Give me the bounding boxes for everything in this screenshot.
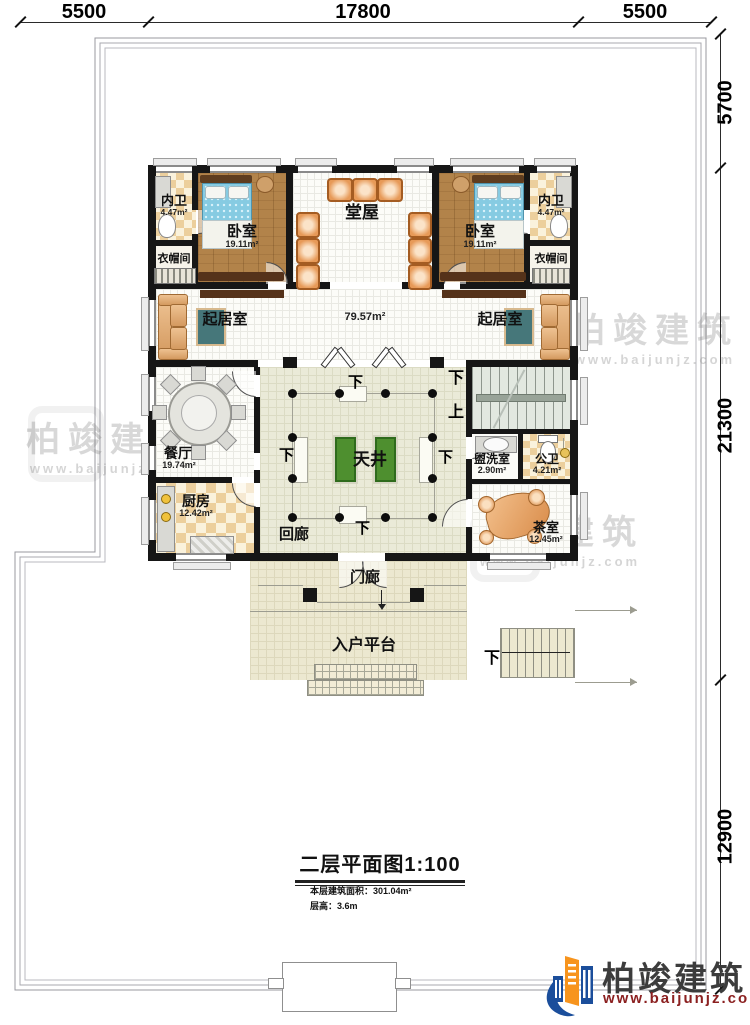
wall-bottom [385, 553, 578, 561]
label-dining: 餐厅 [152, 446, 204, 461]
dim-right-bottom: 12900 [715, 797, 738, 877]
courtyard-stub [430, 357, 444, 368]
dresser [198, 272, 284, 281]
dim-top-right: 5500 [595, 1, 695, 24]
window [570, 300, 578, 346]
window [156, 165, 192, 173]
bed-headboard [200, 175, 252, 183]
wardrobe [154, 268, 196, 284]
tv-cabinet [200, 290, 284, 298]
label-kitchen: 厨房 [170, 494, 222, 509]
stair-down-label: 下 [448, 364, 464, 388]
wall-court-stair [466, 367, 472, 437]
window [148, 500, 156, 540]
column [381, 513, 390, 522]
area-washroom: 2.90m² [466, 466, 518, 475]
entry-steps [307, 680, 424, 696]
plan-title: 二层平面图1:100 [295, 848, 465, 877]
chair [408, 264, 432, 290]
window-sill [173, 562, 231, 570]
label-washroom: 盥洗室 [466, 453, 518, 466]
title-block: 二层平面图1:100 [295, 848, 465, 886]
column [335, 389, 344, 398]
floor-area-note: 本层建筑面积：301.04m² [310, 884, 490, 897]
dim-right-top: 5700 [715, 63, 738, 143]
porch-edge-line [424, 585, 466, 586]
toilet-icon [550, 214, 568, 238]
wall-court-stair [466, 527, 472, 555]
window-sill [487, 562, 551, 570]
label-cloakroom-left: 衣帽间 [150, 254, 198, 266]
window [176, 553, 226, 561]
area-tea-room: 12.45m² [516, 535, 576, 544]
window [298, 165, 332, 173]
column [428, 513, 437, 522]
nightstand [452, 176, 470, 193]
label-bedroom-right: 卧室 [448, 224, 512, 240]
porch-step-arrow-head [378, 604, 386, 610]
window [537, 165, 571, 173]
area-bath-left: 4.47m² [152, 208, 196, 217]
dim-top-left: 5500 [44, 1, 124, 24]
courtyard-down-label: 下 [348, 371, 363, 392]
label-courtyard: 天井 [348, 451, 392, 469]
area-bath-right: 4.47m² [528, 208, 574, 217]
wash-sink [483, 437, 509, 452]
dim-right-middle: 21300 [715, 386, 738, 466]
bed-pillow [228, 186, 249, 199]
chair [296, 212, 320, 238]
leader-line [575, 682, 637, 683]
wardrobe [532, 268, 570, 284]
window [570, 380, 578, 420]
window-sill [580, 297, 588, 351]
leader-arrow-head [630, 606, 637, 614]
wall-bedL-hall [286, 172, 293, 282]
brand-url: www.baijunjz.com [603, 990, 750, 1007]
sofa-cushion [541, 327, 558, 350]
label-bath-right: 内卫 [528, 194, 574, 208]
area-dining: 19.74m² [150, 461, 208, 470]
watermark-logo-icon [28, 406, 104, 482]
sofa-cushion [541, 304, 558, 327]
tea-stool [479, 530, 494, 545]
wall-dining-court [254, 470, 260, 483]
porch-step-arrow [381, 590, 382, 605]
wall-bath-row-bottom [466, 479, 578, 484]
label-porch: 门廊 [330, 570, 400, 586]
wall-dining-court [254, 397, 260, 453]
wall-bedR-hall [432, 172, 439, 282]
chair [152, 405, 167, 420]
porch-edge-line [258, 585, 303, 586]
window [490, 553, 546, 561]
label-hall: 堂屋 [328, 204, 396, 222]
window [148, 300, 156, 346]
floor-height-note: 层高：3.6m [310, 899, 490, 912]
sofa-cushion [170, 327, 187, 350]
bed-pillow [500, 186, 521, 199]
window [397, 165, 429, 173]
bath-lamp-cord [563, 438, 564, 448]
leader-arrow-head [630, 678, 637, 686]
label-tea-room: 茶室 [518, 521, 574, 535]
column [288, 513, 297, 522]
dim-top-center: 17800 [313, 1, 413, 24]
column [428, 474, 437, 483]
window [453, 165, 519, 173]
site-gate-post-right [395, 978, 411, 989]
kitchen-sink [190, 536, 234, 554]
column [428, 389, 437, 398]
chair [352, 178, 378, 202]
chair [408, 212, 432, 238]
chair [231, 405, 246, 420]
wall-bath-left-bottom [148, 240, 196, 246]
porch-column [303, 588, 317, 602]
area-middle: 79.57m² [330, 312, 400, 323]
chair [191, 366, 206, 381]
column [288, 474, 297, 483]
toilet-icon [158, 214, 176, 238]
label-bedroom-left: 卧室 [210, 224, 274, 240]
courtyard-down-label: 下 [279, 444, 294, 465]
label-cloakroom-right: 衣帽间 [526, 254, 576, 266]
dresser [440, 272, 526, 281]
wall-dining-kitchen [148, 477, 232, 483]
label-living-left: 起居室 [190, 312, 260, 328]
tv-cabinet [442, 290, 526, 298]
courtyard-stub [283, 357, 297, 368]
area-kitchen: 12.42m² [166, 509, 226, 518]
window-sill [580, 377, 588, 425]
label-corridor: 回廊 [268, 527, 320, 543]
site-gate [282, 962, 397, 1012]
window-sill [580, 492, 588, 540]
exterior-stair-down-label: 下 [484, 644, 500, 668]
site-gate-post-left [268, 978, 284, 989]
wall-kitchen-court [254, 507, 260, 555]
chair [296, 264, 320, 290]
floor-plan-canvas: 柏竣建筑 www.baijunjz.com 柏竣建筑 www.baijunjz.… [0, 0, 750, 1025]
chair [296, 238, 320, 264]
column [288, 389, 297, 398]
label-entry-platform: 入户平台 [308, 638, 420, 655]
stair-handrail [476, 394, 566, 402]
column [381, 389, 390, 398]
nightstand [256, 176, 274, 193]
entry-steps [314, 664, 417, 680]
chair [408, 238, 432, 264]
platform-edge-line [250, 611, 467, 612]
title-notes: 本层建筑面积：301.04m² 层高：3.6m [310, 884, 490, 912]
sofa-cushion [170, 304, 187, 327]
chair [327, 178, 353, 202]
wall-living-bottom-right [466, 360, 578, 367]
window [210, 165, 276, 173]
tea-stool [478, 496, 495, 513]
bed-headboard [472, 175, 524, 183]
stair-up-label: 上 [448, 398, 464, 422]
column [288, 433, 297, 442]
column [428, 433, 437, 442]
porch-column [410, 588, 424, 602]
area-public-bath: 4.21m² [522, 466, 572, 475]
column [335, 513, 344, 522]
chair [377, 178, 403, 202]
dining-table-inner [181, 395, 217, 431]
brand-logo-icon [541, 950, 599, 1018]
label-public-bath: 公卫 [522, 453, 572, 466]
area-bedroom-right: 19.11m² [448, 240, 512, 249]
porch-step-line [317, 602, 410, 603]
exterior-stair-arrow [502, 652, 570, 653]
label-bath-left: 内卫 [152, 194, 196, 208]
courtyard-down-label: 下 [438, 446, 453, 467]
area-bedroom-left: 19.11m² [210, 240, 274, 249]
bed-pillow [205, 186, 226, 199]
exterior-stair [500, 628, 575, 678]
label-living-right: 起居室 [465, 312, 535, 328]
wall-bath-right-bottom [524, 240, 578, 246]
tea-stool [528, 489, 545, 506]
bed-pillow [477, 186, 498, 199]
leader-line [575, 610, 637, 611]
title-underline [295, 880, 465, 883]
courtyard-down-label: 下 [355, 517, 370, 538]
